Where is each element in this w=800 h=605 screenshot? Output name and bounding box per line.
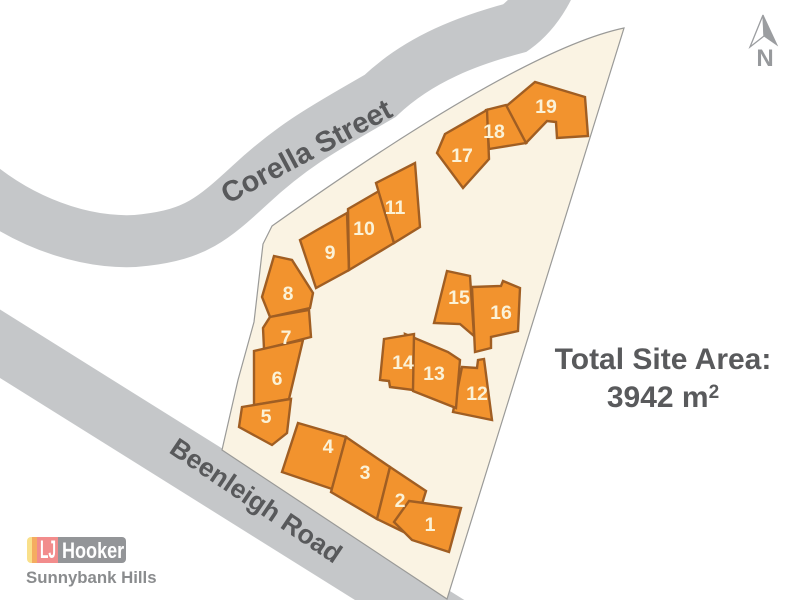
svg-text:9: 9 xyxy=(325,242,336,264)
svg-text:11: 11 xyxy=(385,197,406,219)
svg-text:Total Site Area:: Total Site Area: xyxy=(555,343,772,376)
svg-text:5: 5 xyxy=(261,406,272,428)
svg-text:13: 13 xyxy=(423,363,445,385)
svg-text:10: 10 xyxy=(353,218,375,240)
svg-text:8: 8 xyxy=(283,283,294,305)
svg-text:17: 17 xyxy=(451,145,473,167)
svg-text:N: N xyxy=(756,45,773,72)
svg-text:18: 18 xyxy=(483,121,505,143)
svg-text:3942 m2: 3942 m2 xyxy=(607,381,719,414)
svg-text:6: 6 xyxy=(272,368,283,390)
svg-text:19: 19 xyxy=(535,96,557,118)
svg-text:4: 4 xyxy=(323,436,334,458)
svg-text:14: 14 xyxy=(392,352,414,374)
svg-text:15: 15 xyxy=(448,287,470,309)
svg-text:1: 1 xyxy=(425,514,436,536)
svg-text:16: 16 xyxy=(490,302,512,324)
svg-text:7: 7 xyxy=(281,327,292,349)
svg-text:2: 2 xyxy=(395,490,406,512)
svg-text:12: 12 xyxy=(466,383,488,405)
svg-text:3: 3 xyxy=(360,462,371,484)
